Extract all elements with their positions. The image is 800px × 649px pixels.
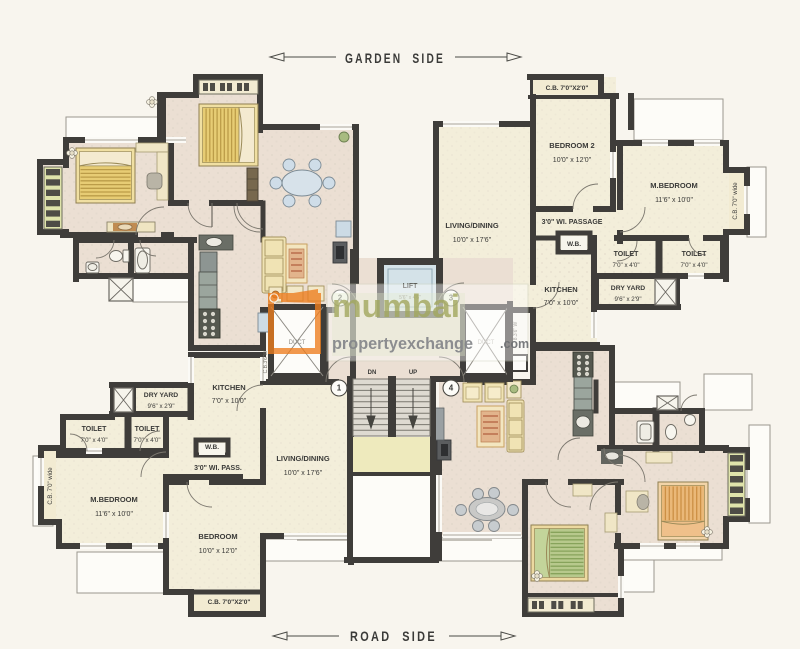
svg-text:KITCHEN: KITCHEN — [212, 383, 245, 392]
svg-text:TOILET: TOILET — [614, 251, 639, 258]
svg-text:C.B. 7'0" wide: C.B. 7'0" wide — [48, 467, 54, 505]
svg-text:10'0" x 12'0": 10'0" x 12'0" — [199, 548, 238, 555]
svg-text:7'0" x 4'0": 7'0" x 4'0" — [612, 262, 639, 269]
svg-text:10'0" x 17'6": 10'0" x 17'6" — [453, 237, 492, 244]
svg-text:DUCT: DUCT — [289, 340, 306, 346]
svg-text:C.B. 7'0" wide: C.B. 7'0" wide — [733, 182, 739, 220]
svg-text:10'0" x 12'0": 10'0" x 12'0" — [553, 157, 592, 164]
svg-text:C.B. 7'0"X2'0": C.B. 7'0"X2'0" — [208, 599, 251, 606]
svg-text:LIVING/DINING: LIVING/DINING — [276, 454, 330, 463]
svg-text:BEDROOM 2: BEDROOM 2 — [549, 141, 594, 150]
svg-text:M.BEDROOM: M.BEDROOM — [90, 495, 138, 504]
svg-text:7'0" x 4'0": 7'0" x 4'0" — [133, 437, 160, 444]
svg-text:3'0" WI. PASSAGE: 3'0" WI. PASSAGE — [542, 219, 603, 226]
svg-text:9'6" x 2'9": 9'6" x 2'9" — [614, 296, 641, 303]
svg-text:KITCHEN: KITCHEN — [544, 285, 577, 294]
svg-text:TOILET: TOILET — [682, 251, 707, 258]
svg-text:W.B.: W.B. — [205, 444, 219, 451]
svg-text:LIVING/DINING: LIVING/DINING — [445, 221, 499, 230]
svg-text:mumbai: mumbai — [332, 288, 460, 324]
svg-text:7'0" x 4'0": 7'0" x 4'0" — [80, 437, 107, 444]
svg-text:BEDROOM: BEDROOM — [198, 532, 237, 541]
svg-text:ROAD SIDE: ROAD SIDE — [350, 628, 437, 644]
svg-text:TOILET: TOILET — [135, 426, 160, 433]
svg-text:GARDEN SIDE: GARDEN SIDE — [345, 50, 445, 66]
svg-text:propertyexchange: propertyexchange — [332, 334, 473, 353]
svg-text:7'0" x 10'0": 7'0" x 10'0" — [212, 398, 247, 405]
svg-text:9'6" x 2'9": 9'6" x 2'9" — [147, 403, 174, 410]
svg-text:DRY YARD: DRY YARD — [144, 392, 178, 399]
svg-text:DRY YARD: DRY YARD — [611, 285, 645, 292]
svg-text:W.B.: W.B. — [567, 241, 581, 248]
svg-text:7'0" x 10'0": 7'0" x 10'0" — [544, 300, 579, 307]
svg-text:4: 4 — [449, 384, 454, 393]
svg-text:7'0" x 4'0": 7'0" x 4'0" — [680, 262, 707, 269]
svg-text:1: 1 — [337, 384, 342, 393]
svg-text:TOILET: TOILET — [82, 426, 107, 433]
svg-text:.com: .com — [500, 337, 529, 351]
svg-text:10'0" x 17'6": 10'0" x 17'6" — [284, 470, 323, 477]
svg-text:UP: UP — [409, 370, 417, 376]
svg-text:C.B. 7'0"X2'0": C.B. 7'0"X2'0" — [546, 85, 589, 92]
svg-text:M.BEDROOM: M.BEDROOM — [650, 181, 698, 190]
svg-text:11'6" x 10'0": 11'6" x 10'0" — [95, 511, 133, 518]
svg-text:11'6" x 10'0": 11'6" x 10'0" — [655, 197, 693, 204]
svg-text:3'0" WI. PASS.: 3'0" WI. PASS. — [194, 465, 242, 472]
svg-text:DN: DN — [368, 370, 377, 376]
